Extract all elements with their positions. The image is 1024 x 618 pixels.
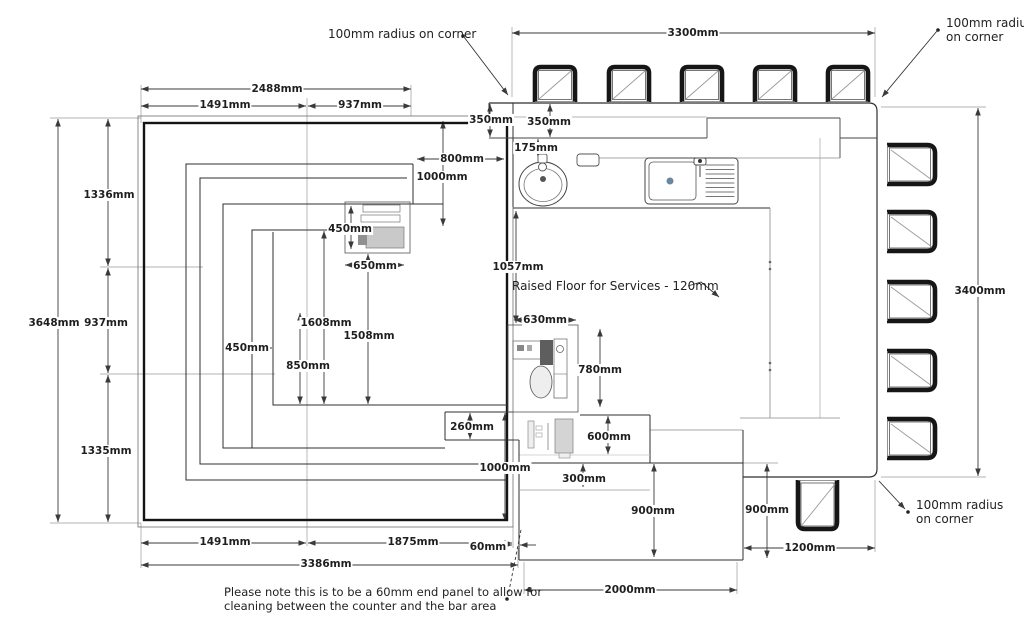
dimension-label-350mm-a: 350mm <box>468 114 514 126</box>
bar-stool <box>609 67 649 102</box>
dimension-label-175mm: 175mm <box>513 142 559 154</box>
annotation-line: 100mm radius <box>916 498 1003 512</box>
dimension-label-1875mm: 1875mm <box>386 536 439 548</box>
bar-stool <box>828 67 868 102</box>
dimension-label-630mm: 630mm <box>522 314 568 326</box>
glasswasher <box>508 325 578 412</box>
bar-stool <box>887 145 935 184</box>
dimension-label-1057mm: 1057mm <box>491 261 544 273</box>
dimension-label-300mm: 300mm <box>561 473 607 485</box>
dimension-label-3400mm: 3400mm <box>953 285 1006 297</box>
dimension-label-1200mm: 1200mm <box>783 542 836 554</box>
hand-sink <box>519 154 567 206</box>
dimension-label-60mm: 60mm <box>469 541 508 553</box>
annotation-line: on corner <box>916 512 1003 526</box>
bar-stool <box>887 351 935 390</box>
bar-stool <box>682 67 722 102</box>
annotation-raised-floor: Raised Floor for Services - 120mm <box>512 279 719 293</box>
dimension-label-780mm: 780mm <box>577 364 623 376</box>
soap-dish <box>577 154 599 166</box>
annotation-radius-top-left: 100mm radius on corner <box>328 27 476 41</box>
dimension-label-650mm: 650mm <box>352 260 398 272</box>
end-panel-note: Please note this is to be a 60mm end pan… <box>224 586 542 613</box>
dimension-label-937mm-top: 937mm <box>337 99 383 111</box>
dimension-label-3386mm: 3386mm <box>299 558 352 570</box>
sink-with-drainer <box>645 158 738 204</box>
bar-stool <box>798 480 837 529</box>
dimension-label-1491mm-top: 1491mm <box>198 99 251 111</box>
under-counter-appliances <box>528 419 573 458</box>
note-line: Please note this is to be a 60mm end pan… <box>224 586 542 600</box>
dimension-label-1000mm-a: 1000mm <box>415 171 468 183</box>
dimension-label-450mm-top: 450mm <box>327 223 373 235</box>
bar-stool <box>755 67 795 102</box>
annotation-line: 100mm radius <box>946 16 1024 30</box>
dimension-label-350mm-b: 350mm <box>526 116 572 128</box>
annotation-line: on corner <box>946 30 1024 44</box>
bar-stools <box>535 67 935 529</box>
dimension-label-450mm-mid: 450mm <box>224 342 270 354</box>
dimension-label-1336mm: 1336mm <box>82 189 135 201</box>
dimension-label-600mm: 600mm <box>586 431 632 443</box>
dimension-label-2488mm-top: 2488mm <box>250 83 303 95</box>
dimension-label-1508mm: 1508mm <box>342 330 395 342</box>
plan-linework <box>0 0 1024 618</box>
dimension-label-900mm-b: 900mm <box>744 504 790 516</box>
annotation-radius-top-right: 100mm radius on corner <box>946 16 1024 44</box>
dimension-label-1000mm-b: 1000mm <box>478 462 531 474</box>
dimension-label-1335mm: 1335mm <box>79 445 132 457</box>
dimension-label-2000mm: 2000mm <box>603 584 656 596</box>
dimension-label-800mm: 800mm <box>439 153 485 165</box>
annotation-radius-bottom-right: 100mm radius on corner <box>916 498 1003 526</box>
dimension-label-3300mm: 3300mm <box>666 27 719 39</box>
bar-stool <box>887 419 935 458</box>
bar-stool <box>887 282 935 321</box>
dimension-label-937mm-left: 937mm <box>83 317 129 329</box>
extension-lines <box>50 27 986 594</box>
dimension-lines <box>58 33 978 590</box>
note-line: cleaning between the counter and the bar… <box>224 600 542 614</box>
bar-stool <box>535 67 575 102</box>
dimension-label-850mm: 850mm <box>285 360 331 372</box>
floor-plan: 2488mm1491mm937mm350mm350mm175mm800mm100… <box>0 0 1024 618</box>
dimension-label-260mm: 260mm <box>449 421 495 433</box>
dimension-label-1491mm-bottom: 1491mm <box>198 536 251 548</box>
dimension-label-900mm-a: 900mm <box>630 505 676 517</box>
bar-stool <box>887 212 935 251</box>
dimension-label-1608mm: 1608mm <box>299 317 352 329</box>
dimension-label-3648mm: 3648mm <box>27 317 80 329</box>
